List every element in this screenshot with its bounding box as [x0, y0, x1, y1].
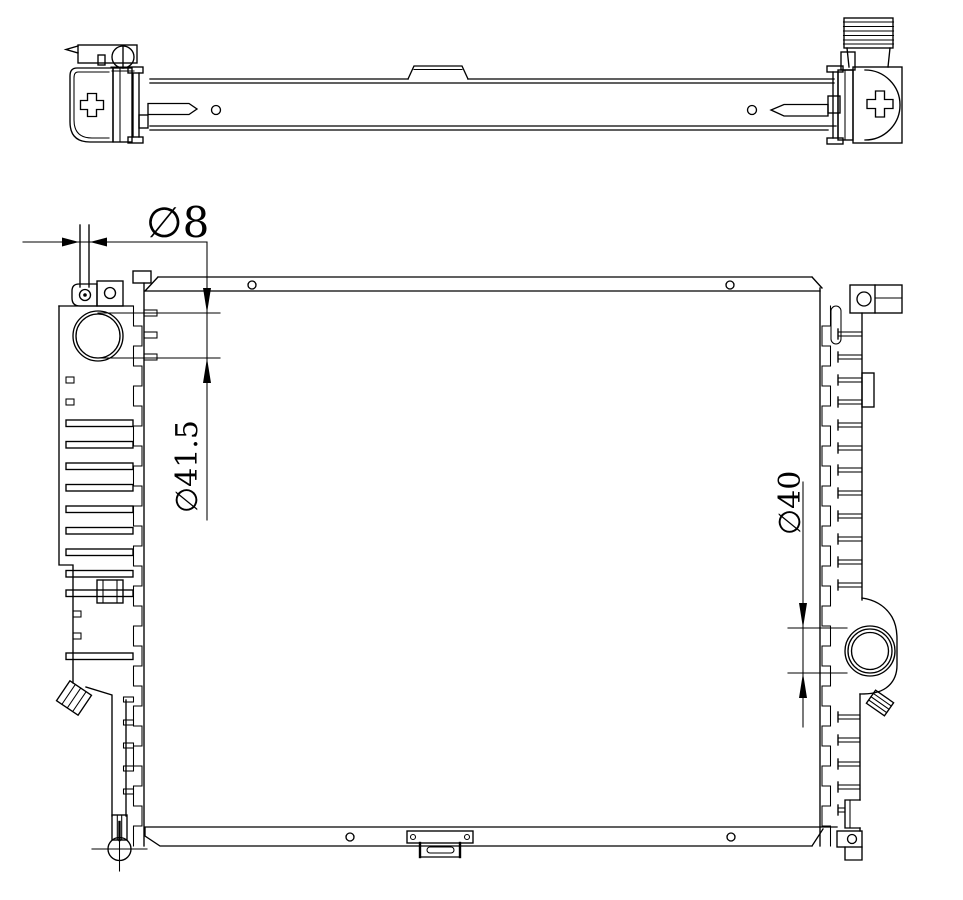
tank-pin	[124, 789, 134, 794]
dimension-arrow	[90, 238, 107, 247]
tank-pin	[838, 378, 862, 382]
tank-step-edge	[86, 687, 112, 816]
rail-hole	[212, 106, 221, 115]
bracket-cell	[97, 281, 123, 306]
tank-pin	[838, 332, 862, 336]
cross-hole	[81, 94, 104, 117]
wall-notch	[73, 611, 81, 617]
tank-pin	[838, 537, 862, 541]
tank-rib	[66, 463, 133, 470]
wall-notch	[66, 377, 74, 383]
tank-rib	[66, 485, 133, 492]
rail-hole	[726, 281, 734, 289]
top-crossmember-rail	[150, 66, 836, 130]
tank-outer-wall	[59, 306, 73, 683]
slot-boss	[831, 306, 841, 344]
side-plate-cap	[133, 271, 151, 283]
bracket-plate	[113, 68, 132, 142]
dimension-label-inlet: ∅41.5	[170, 420, 205, 513]
right-tank	[831, 285, 902, 860]
dimension-label-outlet: ∅40	[773, 471, 808, 535]
bottom-tab-slot	[427, 847, 454, 853]
spout-rib	[73, 692, 86, 712]
tank-pin	[124, 743, 134, 748]
neck-base-side	[847, 48, 849, 67]
cross-hole	[867, 91, 893, 117]
tie-pin	[148, 104, 197, 115]
tank-pin	[838, 715, 860, 719]
wall-notch	[73, 633, 81, 639]
bracket-cell	[850, 285, 902, 313]
bottom-bracket-plate	[407, 831, 473, 843]
tank-rib	[66, 420, 133, 427]
inlet-port-outer-ring	[73, 311, 123, 361]
dimension-arrow	[203, 358, 211, 383]
bottom-bracket-tab	[845, 847, 862, 860]
tank-pin	[838, 514, 862, 518]
neck-base-side	[888, 48, 890, 67]
tank-pin	[838, 400, 862, 404]
spout-rib	[67, 688, 80, 708]
tank-rib	[66, 506, 133, 513]
tank-boss	[97, 580, 123, 603]
tank-pin	[124, 697, 134, 702]
rail-hole	[248, 281, 256, 289]
bottom-bracket	[837, 831, 862, 847]
left-side-plate	[133, 271, 157, 846]
bracket-hole-dot	[83, 293, 87, 297]
tank-rib	[66, 571, 133, 578]
left-tank-lower-pins	[124, 697, 134, 794]
tank-pin	[838, 423, 862, 427]
bottom-boss	[845, 800, 860, 828]
flange-tab	[139, 115, 148, 128]
tank-pin	[838, 446, 862, 450]
tie-pin	[771, 105, 828, 117]
tank-rib	[66, 653, 133, 660]
filler-neck-threads	[844, 22, 894, 44]
bottom-bracket-hole	[411, 835, 416, 840]
outlet-port-outer-ring	[845, 626, 895, 676]
port-flange-tab	[144, 332, 157, 338]
top-view	[66, 18, 902, 144]
core-bottom-rail	[145, 827, 837, 846]
inlet-port-inner-ring	[76, 314, 120, 358]
tank-pin	[838, 583, 862, 587]
bracket-hole	[105, 288, 116, 299]
outlet-port-inner-ring	[852, 633, 889, 670]
rail-bottom-edge	[150, 126, 836, 130]
flange-cap	[827, 138, 843, 144]
core-top-rail	[145, 277, 822, 291]
tank-pin	[838, 785, 860, 789]
outlet-port-mid-ring	[848, 629, 892, 673]
tank-pin	[838, 762, 860, 766]
bracket-d-arc	[865, 70, 900, 140]
tank-pin	[838, 355, 862, 359]
outlet-port	[845, 626, 895, 676]
tank-rib	[66, 528, 133, 535]
rail-hole	[346, 833, 354, 841]
center-tab	[408, 66, 468, 79]
right-tank-pins-upper	[838, 329, 862, 590]
dimension-arrow	[62, 238, 79, 247]
tank-pin	[838, 560, 862, 564]
dimension-arrow	[203, 288, 211, 313]
radiator-engineering-drawing: ∅8 ∅41.5 ∅40	[0, 0, 963, 900]
drain-spout	[57, 681, 92, 715]
dimension-inlet-diameter: ∅41.5	[98, 242, 220, 520]
tank-pin	[124, 766, 134, 771]
tank-rib	[66, 442, 133, 449]
front-view	[57, 225, 902, 871]
dimension-arrow	[799, 603, 807, 628]
dimension-outlet-diameter: ∅40	[773, 471, 847, 727]
tank-pin	[838, 491, 862, 495]
side-boss	[862, 373, 874, 407]
side-plate-castellation	[134, 306, 143, 846]
inlet-port	[73, 311, 123, 361]
core	[145, 277, 837, 857]
tank-pin	[838, 808, 845, 812]
left-tank-ribs	[66, 420, 133, 660]
dimension-arrow	[799, 673, 807, 698]
bottom-bracket-hole	[465, 835, 470, 840]
back-plate-tab	[66, 46, 78, 53]
tank-pin	[838, 468, 862, 472]
tank-rib	[66, 549, 133, 556]
bracket-hole	[857, 292, 871, 306]
rail-top-edge	[150, 79, 834, 83]
top-right-mount-bracket	[827, 18, 902, 144]
rail-hole	[748, 106, 757, 115]
wall-notch	[66, 399, 74, 405]
tank-pin	[124, 720, 134, 725]
bracket-body	[853, 67, 902, 143]
spout-rib	[62, 684, 75, 704]
dimension-pin-diameter: ∅8	[23, 198, 209, 247]
bottom-bracket-hole	[848, 835, 857, 844]
top-left-mount-bracket	[66, 45, 197, 143]
side-plate-castellation	[822, 306, 831, 846]
tank-pin	[838, 738, 860, 742]
right-side-plate	[820, 288, 831, 846]
rail-hole	[727, 833, 735, 841]
dimension-label-pin: ∅8	[146, 198, 209, 247]
port-flange-tab	[144, 354, 157, 360]
